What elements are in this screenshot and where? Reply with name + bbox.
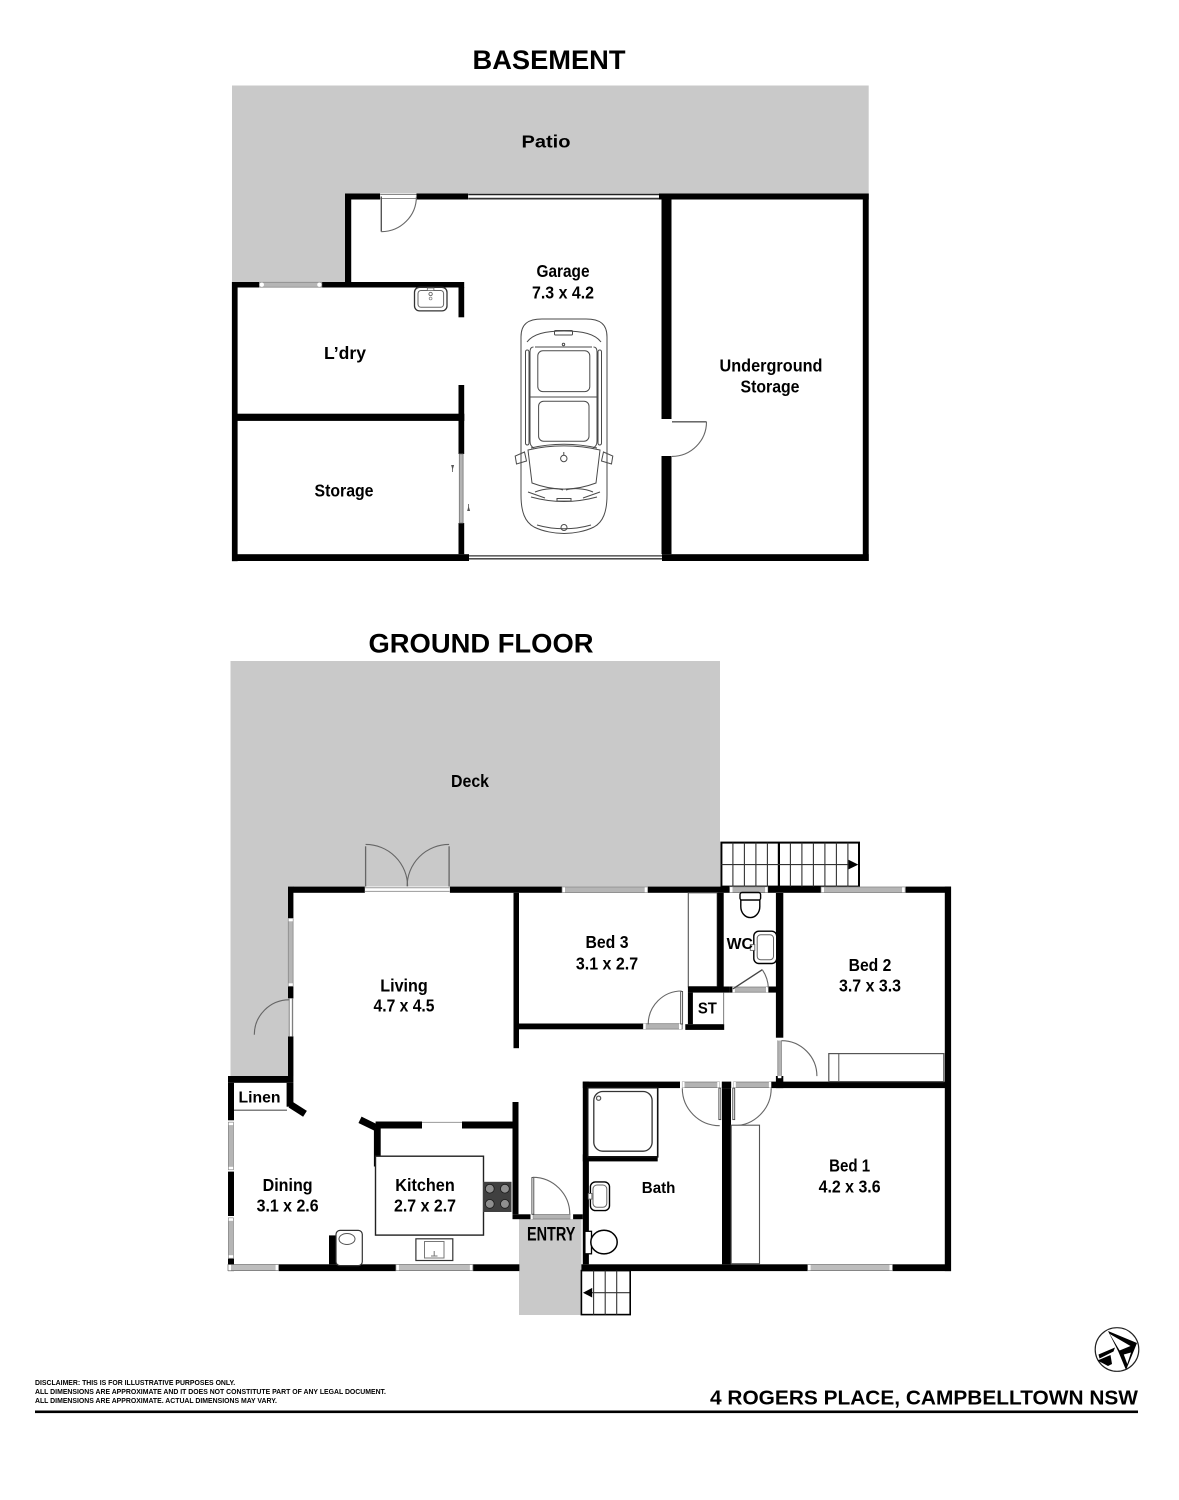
svg-text:WC: WC — [727, 936, 753, 953]
svg-text:Kitchen: Kitchen — [395, 1175, 455, 1195]
svg-text:Bath: Bath — [642, 1180, 676, 1197]
svg-text:Garage: Garage — [537, 261, 590, 281]
svg-text:Deck: Deck — [451, 771, 489, 791]
svg-text:Dining: Dining — [263, 1175, 313, 1195]
svg-text:Living: Living — [380, 976, 428, 996]
svg-text:Storage: Storage — [315, 481, 374, 501]
svg-text:3.1 x 2.7: 3.1 x 2.7 — [576, 953, 638, 973]
svg-text:ST: ST — [698, 1000, 718, 1017]
svg-text:Bed 3: Bed 3 — [586, 932, 629, 952]
svg-text:DISCLAIMER: THIS IS FOR ILLUST: DISCLAIMER: THIS IS FOR ILLUSTRATIVE PUR… — [35, 1380, 235, 1387]
svg-text:Bed 1: Bed 1 — [829, 1156, 870, 1176]
svg-text:Bed 2: Bed 2 — [849, 955, 892, 975]
svg-text:4.2 x 3.6: 4.2 x 3.6 — [819, 1176, 881, 1196]
svg-text:Patio: Patio — [522, 132, 571, 152]
svg-text:L’dry: L’dry — [324, 343, 366, 363]
svg-text:3.1 x 2.6: 3.1 x 2.6 — [257, 1195, 319, 1215]
svg-text:Storage: Storage — [741, 377, 800, 397]
svg-text:BASEMENT: BASEMENT — [473, 45, 627, 75]
svg-text:GROUND FLOOR: GROUND FLOOR — [369, 629, 594, 659]
svg-text:Underground: Underground — [720, 356, 823, 376]
svg-text:2.7 x 2.7: 2.7 x 2.7 — [394, 1195, 456, 1215]
svg-text:7.3 x 4.2: 7.3 x 4.2 — [532, 283, 594, 303]
svg-text:3.7 x 3.3: 3.7 x 3.3 — [839, 976, 901, 996]
svg-text:4.7 x 4.5: 4.7 x 4.5 — [374, 996, 435, 1016]
svg-text:ENTRY: ENTRY — [527, 1225, 576, 1246]
svg-text:ALL DIMENSIONS ARE APPROXIMATE: ALL DIMENSIONS ARE APPROXIMATE. ACTUAL D… — [35, 1398, 277, 1405]
svg-text:4 ROGERS PLACE, CAMPBELLTOWN N: 4 ROGERS PLACE, CAMPBELLTOWN NSW — [710, 1387, 1139, 1410]
svg-text:Linen: Linen — [239, 1089, 281, 1106]
svg-text:ALL DIMENSIONS ARE APPROXIMATE: ALL DIMENSIONS ARE APPROXIMATE AND IT DO… — [35, 1389, 386, 1396]
